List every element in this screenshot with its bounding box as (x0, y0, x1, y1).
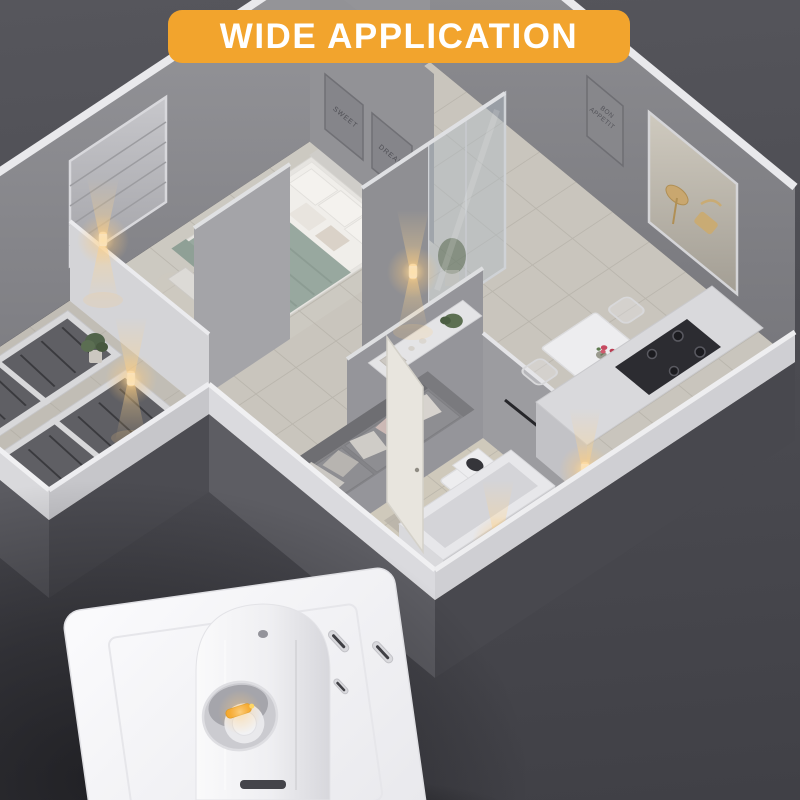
burner (648, 350, 657, 359)
burner (673, 331, 683, 341)
sensor-hole (258, 630, 268, 638)
burner (670, 367, 679, 376)
led-glow (218, 690, 262, 734)
headline-banner: WIDE APPLICATION (168, 10, 630, 63)
door-knob (415, 468, 419, 472)
apartment-scene-illustration: BON APPETIT (0, 0, 800, 800)
bottom-vent (240, 780, 286, 789)
headline-text: WIDE APPLICATION (220, 17, 578, 57)
burner (695, 347, 705, 357)
night-light-product (196, 604, 330, 800)
product-showcase-image: BON APPETIT (0, 0, 800, 800)
